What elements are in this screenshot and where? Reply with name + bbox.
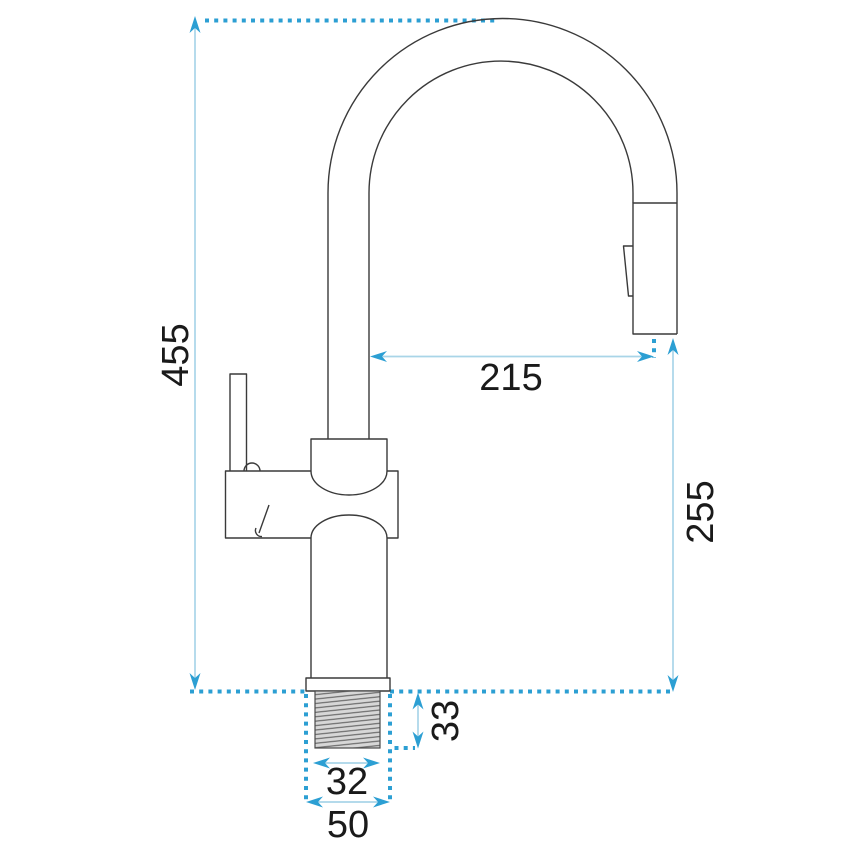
faucet-dimension-drawing: 455 215 255 33 32 50 — [0, 0, 868, 868]
riser-pipe — [311, 538, 387, 678]
dimension-label-thread-width: 32 — [326, 761, 368, 803]
threaded-tail-hatch — [315, 691, 380, 748]
dimension-label-thread-length: 33 — [425, 700, 467, 742]
dimension-label-base-width: 50 — [327, 804, 369, 846]
spray-head-outline — [633, 203, 677, 334]
dimension-labels: 455 215 255 33 32 50 — [155, 323, 722, 846]
technical-drawing-canvas: 455 215 255 33 32 50 — [0, 0, 868, 868]
dimension-label-spout-reach: 215 — [479, 357, 542, 399]
base-flange — [306, 678, 390, 691]
body-right-outline — [387, 471, 398, 538]
body-left-outline — [226, 471, 312, 538]
dimension-lines — [195, 22, 673, 802]
thread-section — [315, 691, 380, 748]
dimension-arrowheads — [190, 16, 679, 808]
collar-skirt-arc — [311, 471, 387, 495]
spray-head-button — [624, 246, 634, 296]
mounting-collar — [311, 439, 387, 471]
handle-lever — [230, 374, 247, 471]
faucet-outline — [226, 19, 678, 692]
riser-shoulder-arc — [311, 515, 387, 538]
extension-dotted-lines — [190, 21, 671, 801]
dimension-label-overall-height: 455 — [155, 323, 197, 386]
dimension-label-outlet-height: 255 — [680, 480, 722, 543]
handle-lower-edge — [255, 505, 269, 537]
